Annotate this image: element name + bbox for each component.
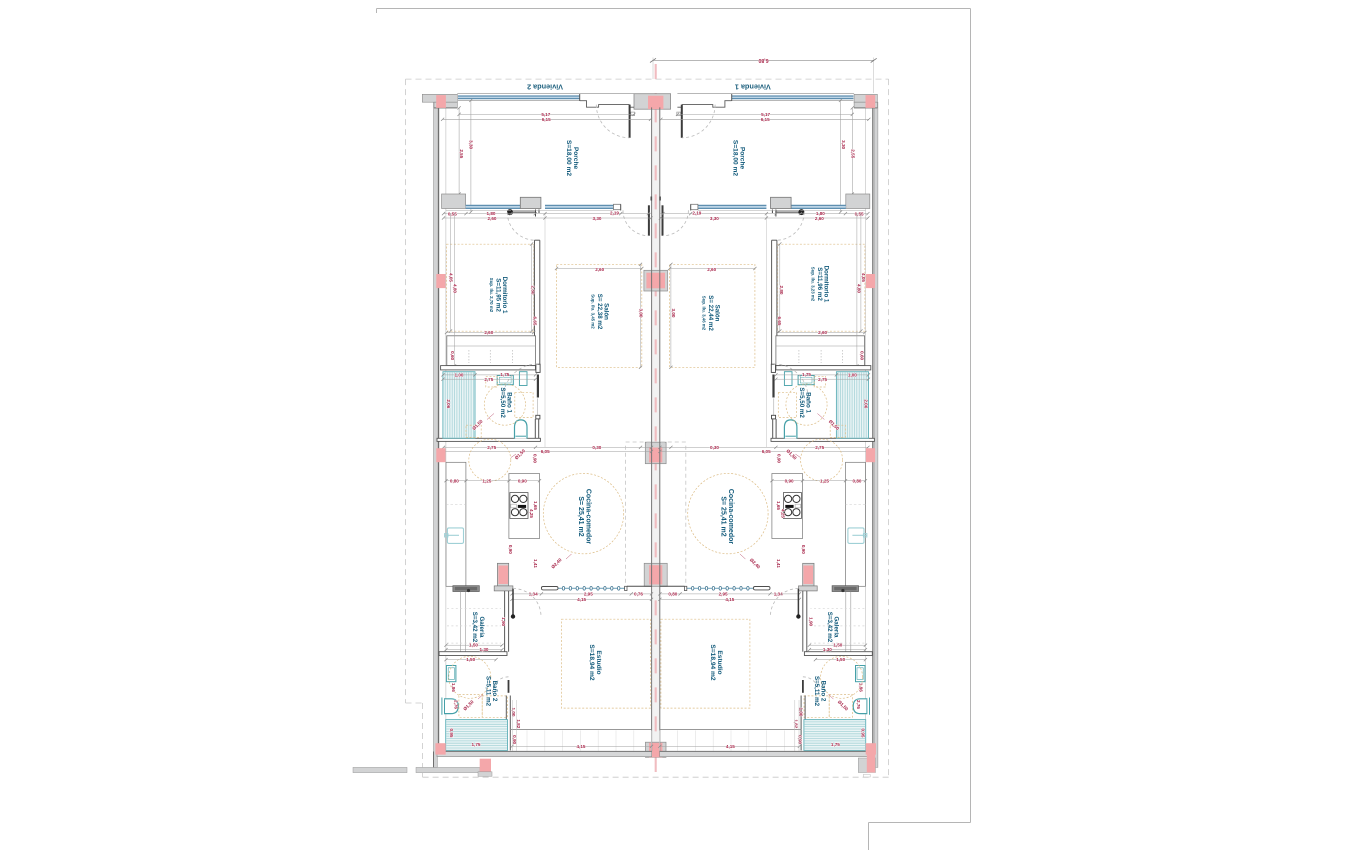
svg-text:2,55: 2,55 bbox=[459, 149, 464, 158]
svg-text:Cocina-comedorS= 25,41 m2: Cocina-comedorS= 25,41 m2 bbox=[577, 489, 592, 545]
svg-text:2,75: 2,75 bbox=[487, 445, 496, 450]
svg-text:0,90: 0,90 bbox=[518, 478, 527, 483]
svg-text:0,80: 0,80 bbox=[853, 478, 862, 483]
svg-text:1,00: 1,00 bbox=[511, 708, 516, 717]
svg-text:3,00: 3,00 bbox=[638, 309, 643, 318]
svg-text:2,95: 2,95 bbox=[719, 592, 728, 597]
svg-text:2,75: 2,75 bbox=[815, 445, 824, 450]
svg-text:0,90: 0,90 bbox=[798, 735, 803, 744]
svg-text:6,15: 6,15 bbox=[542, 117, 551, 122]
svg-text:0,95: 0,95 bbox=[449, 729, 454, 738]
svg-text:2,60: 2,60 bbox=[815, 216, 824, 221]
svg-text:1,90: 1,90 bbox=[809, 617, 814, 626]
svg-text:0,95: 0,95 bbox=[860, 729, 865, 738]
svg-text:2,75: 2,75 bbox=[818, 377, 827, 382]
svg-text:1,41: 1,41 bbox=[776, 559, 781, 568]
svg-text:2,60: 2,60 bbox=[818, 330, 827, 335]
svg-text:0,90: 0,90 bbox=[777, 454, 782, 463]
svg-text:0,55: 0,55 bbox=[448, 211, 457, 216]
svg-text:1,41: 1,41 bbox=[533, 559, 538, 568]
svg-text:1,90: 1,90 bbox=[501, 617, 506, 626]
svg-text:2,76: 2,76 bbox=[453, 700, 458, 709]
svg-text:2,60: 2,60 bbox=[488, 216, 497, 221]
svg-text:4,05: 4,05 bbox=[448, 273, 453, 282]
svg-text:4,15: 4,15 bbox=[577, 597, 586, 602]
svg-text:1,50: 1,50 bbox=[836, 657, 845, 662]
svg-text:1,75: 1,75 bbox=[500, 372, 509, 377]
svg-text:Dormitorio 1S=11,96 m2Sup. Ilu: Dormitorio 1S=11,96 m2Sup. Ilu. 3,23 m2 bbox=[811, 266, 830, 303]
svg-text:1,25: 1,25 bbox=[820, 478, 829, 483]
svg-text:0,76: 0,76 bbox=[634, 592, 643, 597]
svg-text:2,60: 2,60 bbox=[484, 330, 493, 335]
svg-text:Vivienda 2: Vivienda 2 bbox=[527, 83, 563, 92]
svg-text:1,86: 1,86 bbox=[859, 683, 864, 692]
svg-text:2,80: 2,80 bbox=[530, 286, 535, 295]
svg-text:0,80: 0,80 bbox=[450, 478, 459, 483]
svg-text:2,75: 2,75 bbox=[484, 377, 493, 382]
svg-text:3,30: 3,30 bbox=[468, 140, 473, 149]
svg-text:3,30: 3,30 bbox=[710, 216, 719, 221]
svg-text:0,60: 0,60 bbox=[450, 351, 455, 360]
svg-text:Vivienda 1: Vivienda 1 bbox=[735, 83, 771, 92]
svg-text:6,05: 6,05 bbox=[762, 449, 771, 454]
svg-text:5,17: 5,17 bbox=[761, 112, 770, 117]
svg-text:1,50: 1,50 bbox=[466, 657, 475, 662]
svg-text:2,19: 2,19 bbox=[692, 211, 701, 216]
svg-text:4,25: 4,25 bbox=[529, 509, 534, 518]
svg-text:1,75: 1,75 bbox=[472, 742, 481, 747]
svg-text:1,50: 1,50 bbox=[833, 643, 842, 648]
svg-text:0,60: 0,60 bbox=[860, 351, 865, 360]
svg-text:1,65: 1,65 bbox=[776, 501, 781, 510]
svg-text:0,90: 0,90 bbox=[785, 478, 794, 483]
svg-text:4,05: 4,05 bbox=[861, 273, 866, 282]
svg-text:0,80: 0,80 bbox=[668, 592, 677, 597]
svg-text:1,75: 1,75 bbox=[831, 742, 840, 747]
svg-text:2,19: 2,19 bbox=[610, 211, 619, 216]
svg-text:2,95: 2,95 bbox=[584, 592, 593, 597]
svg-text:1,30: 1,30 bbox=[480, 647, 489, 652]
svg-text:2,55: 2,55 bbox=[851, 149, 856, 158]
svg-text:1,00: 1,00 bbox=[848, 372, 857, 377]
svg-text:6,15: 6,15 bbox=[761, 117, 770, 122]
svg-text:2,80: 2,80 bbox=[779, 286, 784, 295]
svg-text:3,30: 3,30 bbox=[841, 140, 846, 149]
svg-text:1,86: 1,86 bbox=[451, 683, 456, 692]
svg-text:0,90: 0,90 bbox=[508, 545, 513, 554]
svg-text:6,65: 6,65 bbox=[777, 317, 782, 326]
svg-text:2,60: 2,60 bbox=[595, 267, 604, 272]
svg-text:0,90: 0,90 bbox=[801, 545, 806, 554]
svg-text:4,15: 4,15 bbox=[577, 744, 586, 749]
svg-text:3,30: 3,30 bbox=[593, 216, 602, 221]
svg-text:2,06: 2,06 bbox=[446, 399, 451, 408]
svg-text:4,80: 4,80 bbox=[857, 284, 862, 293]
svg-text:0,30: 0,30 bbox=[710, 445, 719, 450]
svg-text:4,80: 4,80 bbox=[453, 284, 458, 293]
svg-text:0,30: 0,30 bbox=[592, 445, 601, 450]
svg-text:4,25: 4,25 bbox=[781, 509, 786, 518]
svg-text:1,30: 1,30 bbox=[823, 647, 832, 652]
svg-text:1,00: 1,00 bbox=[455, 372, 464, 377]
svg-text:4,15: 4,15 bbox=[725, 597, 734, 602]
svg-text:6,05: 6,05 bbox=[541, 449, 550, 454]
svg-text:Cocina-comedorS= 25,41 m2: Cocina-comedorS= 25,41 m2 bbox=[720, 489, 735, 545]
svg-text:6,80: 6,80 bbox=[758, 57, 768, 63]
svg-text:1,82: 1,82 bbox=[793, 719, 798, 728]
svg-text:2,06: 2,06 bbox=[864, 399, 869, 408]
svg-text:1,25: 1,25 bbox=[482, 478, 491, 483]
svg-text:3,00: 3,00 bbox=[671, 309, 676, 318]
svg-text:2,76: 2,76 bbox=[856, 700, 861, 709]
svg-text:2,60: 2,60 bbox=[707, 267, 716, 272]
svg-text:0,90: 0,90 bbox=[533, 454, 538, 463]
svg-text:4,15: 4,15 bbox=[726, 744, 735, 749]
svg-text:0,55: 0,55 bbox=[855, 211, 864, 216]
svg-text:6,65: 6,65 bbox=[533, 317, 538, 326]
svg-text:5,17: 5,17 bbox=[541, 112, 550, 117]
svg-text:Dormitorio 1S=11,95 m2Sup. Ilu: Dormitorio 1S=11,95 m2Sup. Ilu. 2,70 m2 bbox=[489, 277, 508, 314]
svg-text:1,75: 1,75 bbox=[802, 372, 811, 377]
svg-text:1,50: 1,50 bbox=[469, 643, 478, 648]
